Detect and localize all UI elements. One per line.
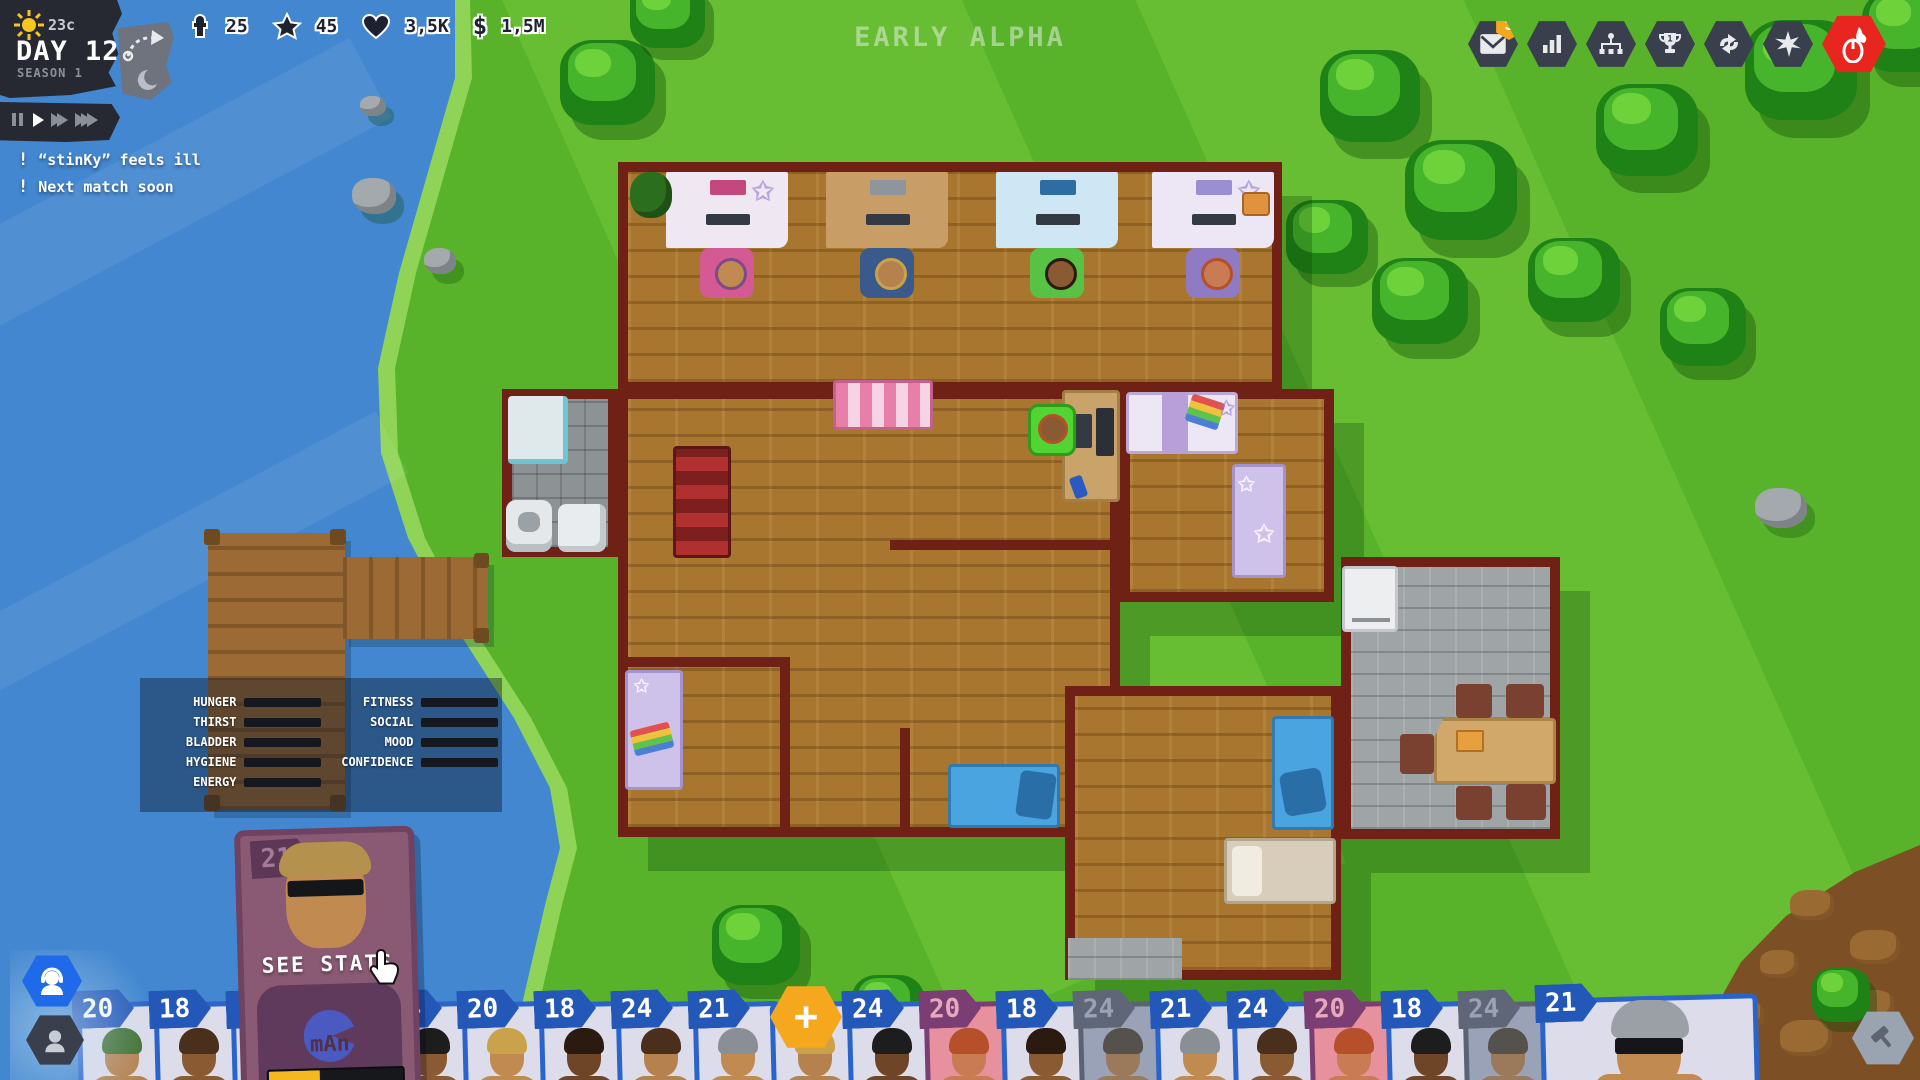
stat-bar — [244, 738, 321, 747]
dock-post — [474, 628, 489, 643]
stat-label: CONFIDENCE — [325, 755, 413, 769]
selected-player-name: mAn — [246, 1030, 415, 1060]
rock — [352, 178, 396, 214]
notification-item[interactable]: !“stinKy” feels ill — [18, 150, 201, 170]
monitor — [710, 180, 746, 195]
bar-chart-icon — [1540, 32, 1564, 56]
inner-wall — [618, 657, 790, 667]
game-viewport: ✩ ✩ ✩ ✩ ✩ ✩ — [0, 0, 1920, 1080]
stat-label: MOOD — [325, 735, 413, 749]
season-label: SEASON 1 — [17, 66, 83, 80]
player-head — [1045, 258, 1077, 290]
water-highlight — [0, 411, 408, 698]
stat-label: ENERGY — [148, 775, 236, 789]
dining-chair[interactable] — [1456, 684, 1492, 718]
swap-arrows-icon — [1716, 32, 1742, 56]
stat-bar — [421, 698, 498, 707]
dock-post — [474, 553, 489, 568]
dock-walkway — [343, 557, 488, 639]
playback-bar — [0, 102, 120, 142]
potted-plant[interactable] — [630, 172, 672, 218]
fridge-handle — [1352, 618, 1390, 622]
stat-bar — [244, 758, 321, 767]
alert-icon: ! — [18, 150, 28, 170]
cursor-pointer — [368, 948, 402, 988]
monitor — [1040, 180, 1076, 195]
notification-item[interactable]: !Next match soon — [18, 177, 174, 197]
needs-panel: HUNGER THIRST BLADDER HYGIENE ENERGY FIT… — [140, 678, 502, 812]
blanket — [1278, 767, 1327, 818]
stat-label: BLADDER — [148, 735, 236, 749]
stat-label: THIRST — [148, 715, 236, 729]
fastest-button[interactable] — [75, 113, 98, 132]
stat-bar — [421, 738, 498, 747]
fast-forward-button[interactable] — [51, 113, 68, 132]
fire-mouse-icon — [1837, 25, 1871, 63]
stat-bar — [421, 758, 498, 767]
inner-wall — [890, 540, 1120, 550]
monitor — [1096, 408, 1114, 456]
monitor — [870, 180, 906, 195]
keyboard — [1192, 214, 1236, 225]
inner-wall — [900, 728, 910, 837]
monitor — [1196, 180, 1232, 195]
player-head — [1201, 258, 1233, 290]
stat-bar — [421, 718, 498, 727]
pizza-on-table[interactable] — [1456, 730, 1484, 752]
sink[interactable] — [558, 504, 606, 552]
stat-label: HYGIENE — [148, 755, 236, 769]
pause-button[interactable] — [12, 113, 26, 131]
play-match-button[interactable] — [1822, 12, 1886, 76]
transfers-button[interactable] — [1704, 18, 1754, 70]
bed-red-striped[interactable] — [673, 446, 731, 558]
dining-chair[interactable] — [1506, 784, 1546, 820]
keyboard — [866, 214, 910, 225]
trophy-icon: 1 — [1657, 31, 1683, 57]
dock-post — [330, 529, 346, 545]
bed-stripe — [1162, 392, 1188, 454]
hammer-icon — [1868, 1023, 1898, 1053]
selected-player-hair — [278, 841, 371, 878]
dining-chair[interactable] — [1506, 684, 1544, 718]
plus-icon: + — [794, 997, 818, 1037]
alert-icon: ! — [18, 177, 28, 197]
mail-button[interactable]: 3 — [1468, 18, 1518, 70]
play-button[interactable] — [33, 113, 44, 132]
management-button[interactable] — [1586, 18, 1636, 70]
player-head — [715, 258, 747, 290]
rock — [424, 248, 456, 274]
org-chart-icon — [1598, 32, 1624, 56]
toilet-bowl — [518, 512, 540, 532]
keyboard — [706, 214, 750, 225]
player-head — [1038, 414, 1068, 444]
events-button[interactable] — [1763, 18, 1813, 70]
svg-text:1: 1 — [1667, 35, 1672, 45]
pizza-box[interactable] — [1242, 192, 1270, 216]
burst-icon — [1775, 31, 1801, 57]
rock — [360, 96, 386, 116]
keyboard — [1036, 214, 1080, 225]
shower[interactable] — [508, 396, 568, 464]
stat-bar — [244, 718, 321, 727]
headset-person-icon — [36, 966, 68, 996]
dining-chair[interactable] — [1400, 734, 1434, 774]
stats-button[interactable] — [1527, 18, 1577, 70]
sunglasses — [287, 879, 363, 897]
stat-label: HUNGER — [148, 695, 236, 709]
stat-label: FITNESS — [325, 695, 413, 709]
crescent-icon — [138, 70, 157, 90]
dock-post — [204, 529, 220, 545]
blanket — [1015, 770, 1057, 821]
fridge[interactable] — [1342, 566, 1398, 632]
topbar-buttons: 3 1 — [1468, 12, 1886, 76]
stat-bar — [244, 778, 321, 787]
sunglasses — [1615, 1038, 1683, 1054]
stat-bar — [244, 698, 321, 707]
bed-pink-striped[interactable] — [833, 380, 933, 430]
stat-label: SOCIAL — [325, 715, 413, 729]
dining-chair[interactable] — [1456, 786, 1492, 820]
roster-card[interactable]: 21 — [694, 1002, 782, 1080]
pillow — [1232, 846, 1262, 896]
roster-card[interactable]: 21 — [1541, 996, 1759, 1080]
stone-floor-patch — [1068, 938, 1182, 980]
dining-table[interactable] — [1434, 718, 1556, 784]
person-icon — [41, 1026, 69, 1054]
inner-wall — [780, 657, 790, 837]
player-head — [875, 258, 907, 290]
tournament-button[interactable]: 1 — [1645, 18, 1695, 70]
rock — [1755, 488, 1807, 528]
